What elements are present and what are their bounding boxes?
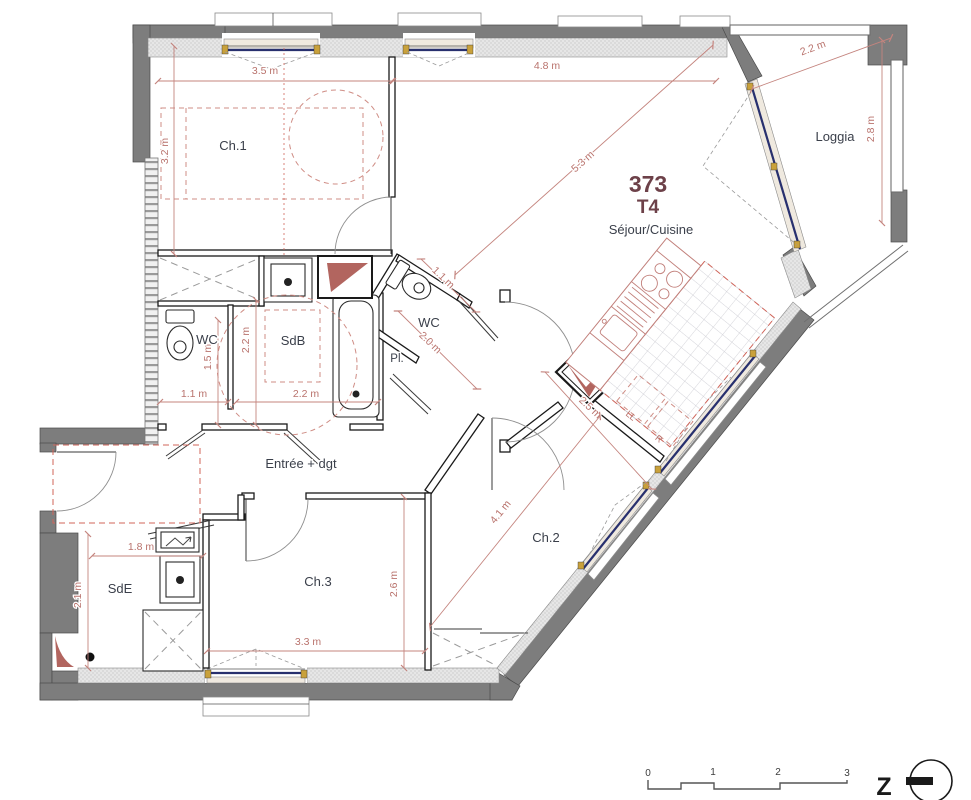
window-sejour	[403, 33, 475, 66]
doors	[57, 197, 575, 633]
dim-kitchen-width: 2.5 m	[576, 394, 604, 421]
dim-loggia-height: 2.8 m	[865, 116, 877, 143]
floor-plan: 3.5 m 4.8 m 5.3 m 3.2 m 2.2 m 2.8 m 2.2 …	[0, 0, 971, 800]
bathtub	[333, 295, 379, 417]
north-arrow: Z	[876, 760, 952, 800]
wall-sde-right	[203, 520, 209, 668]
dim-sde-width: 1.8 m	[128, 541, 155, 553]
scale-tick-3: 3	[844, 768, 850, 779]
party-wall	[145, 158, 158, 444]
scale-bar: 0 1 2 3	[645, 767, 850, 789]
door-ch1	[335, 197, 391, 254]
unit-number: 373	[629, 171, 667, 197]
room-label-ch1: Ch.1	[219, 138, 246, 153]
dim-ch1-height: 3.2 m	[159, 138, 171, 165]
wall-ch3-top	[306, 493, 430, 499]
entrance-zone	[53, 445, 200, 523]
door-ch3	[246, 499, 308, 561]
wall-ch3-right	[425, 493, 431, 670]
sink-sdb	[264, 258, 312, 302]
room-label-entree: Entrée + dgt	[265, 456, 337, 471]
dim-sejour-width: 4.8 m	[534, 60, 561, 72]
electrical-panel	[156, 528, 199, 552]
scale-tick-0: 0	[645, 768, 651, 779]
duct-sdb	[318, 256, 372, 298]
north-label: Z	[876, 773, 891, 800]
entrance-door	[57, 452, 116, 511]
shower-sde	[143, 610, 203, 671]
unit-type: T4	[637, 197, 660, 218]
duct-left-wall	[55, 636, 74, 667]
window-ch3	[203, 649, 309, 716]
dim-sde-height: 2.1 m	[72, 582, 84, 609]
floor-plan-page: 3.5 m 4.8 m 5.3 m 3.2 m 2.2 m 2.8 m 2.2 …	[0, 0, 971, 800]
wall-corridor	[425, 414, 484, 494]
dim-ch2-length: 4.1 m	[488, 498, 514, 526]
furniture-zones	[53, 48, 525, 666]
loggia-top-railing	[730, 25, 870, 35]
scale-tick-2: 2	[775, 767, 781, 778]
floor-drain	[86, 653, 95, 662]
sliding-door-ch2-closet	[434, 629, 528, 633]
window-loggia-glazing	[703, 79, 806, 252]
wall-ch1-right	[389, 57, 395, 197]
loggia-side-window	[891, 60, 903, 192]
toilet-wc1	[166, 310, 194, 360]
turning-circle-ch1	[289, 90, 383, 184]
scale-tick-1: 1	[710, 767, 716, 778]
dim-loggia-width: 2.2 m	[799, 38, 828, 58]
room-label-wc2: WC	[418, 315, 440, 330]
room-label-sdb: SdB	[281, 333, 306, 348]
dim-wc1-width: 1.1 m	[181, 388, 208, 400]
room-label-loggia: Loggia	[815, 129, 855, 144]
room-label-ch2: Ch.2	[532, 530, 559, 545]
window-ch1	[222, 33, 320, 69]
room-label-wc1: WC	[196, 332, 218, 347]
loggia-corner-wall	[868, 25, 907, 65]
north-bar-icon	[906, 777, 933, 785]
sink-sde	[160, 556, 200, 603]
dim-ch1-width: 3.5 m	[252, 65, 279, 77]
wall-wc-sdb	[228, 305, 233, 409]
sliding-door-placard	[390, 374, 431, 414]
loggia-bottom-railing	[804, 245, 908, 328]
dim-sdb-height: 2.2 m	[240, 327, 252, 354]
bed-ch1	[161, 108, 363, 199]
room-label-sde: SdE	[108, 581, 133, 596]
entrance-jog-wall	[40, 428, 150, 444]
window-ch2-lower	[578, 480, 659, 580]
room-label-placard: Pl.	[390, 353, 403, 365]
dim-sdb-width: 2.2 m	[293, 388, 320, 400]
room-label-sejour: Séjour/Cuisine	[609, 222, 694, 237]
dim-wc1-height: 1.5 m	[202, 344, 214, 371]
closet-wc-strip	[160, 258, 260, 300]
room-label-ch3: Ch.3	[304, 574, 331, 589]
dim-ch3-height: 2.6 m	[388, 571, 400, 598]
dim-ch3-width: 3.3 m	[295, 636, 322, 648]
